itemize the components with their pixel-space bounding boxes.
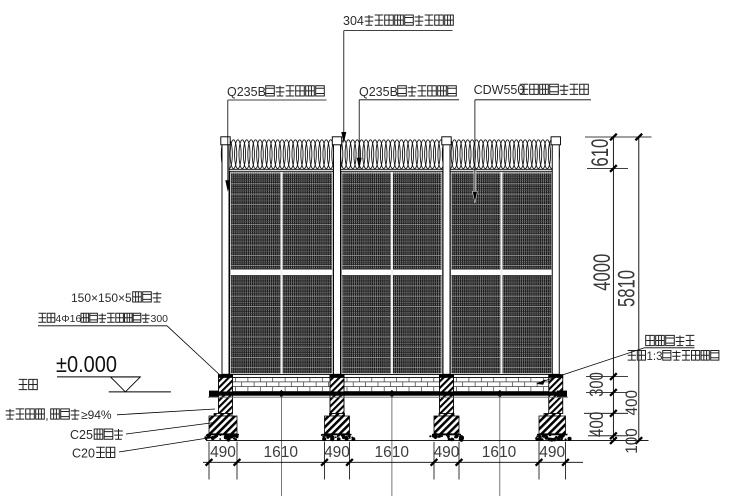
svg-text:Q235B: Q235B [359, 85, 398, 99]
svg-text:Q235B: Q235B [227, 85, 266, 99]
svg-text:300: 300 [151, 313, 169, 325]
svg-text:1:3: 1:3 [647, 351, 663, 363]
svg-text:490: 490 [210, 444, 236, 461]
svg-text:304: 304 [343, 14, 364, 28]
svg-text:1610: 1610 [375, 444, 410, 461]
svg-text:100: 100 [623, 428, 641, 454]
svg-text:400: 400 [587, 412, 608, 438]
svg-text:≥94%: ≥94% [81, 408, 112, 422]
svg-text:300: 300 [587, 372, 608, 397]
svg-text:±0.000: ±0.000 [56, 351, 117, 377]
svg-text:490: 490 [324, 444, 350, 461]
svg-text:1610: 1610 [264, 444, 299, 461]
svg-text:,: , [45, 408, 48, 422]
svg-text:490: 490 [539, 444, 565, 461]
svg-text:5810: 5810 [614, 270, 641, 307]
svg-text:400: 400 [623, 390, 641, 416]
svg-text:490: 490 [434, 444, 460, 461]
svg-text:4Φ16: 4Φ16 [55, 313, 81, 325]
svg-text:610: 610 [587, 139, 614, 167]
svg-text:4000: 4000 [589, 254, 616, 291]
svg-text:1610: 1610 [482, 444, 517, 461]
svg-text:C25: C25 [70, 428, 93, 442]
svg-text:CDW550: CDW550 [474, 83, 525, 97]
svg-text:C20: C20 [72, 446, 95, 460]
svg-text:150×150×5: 150×150×5 [71, 291, 132, 305]
